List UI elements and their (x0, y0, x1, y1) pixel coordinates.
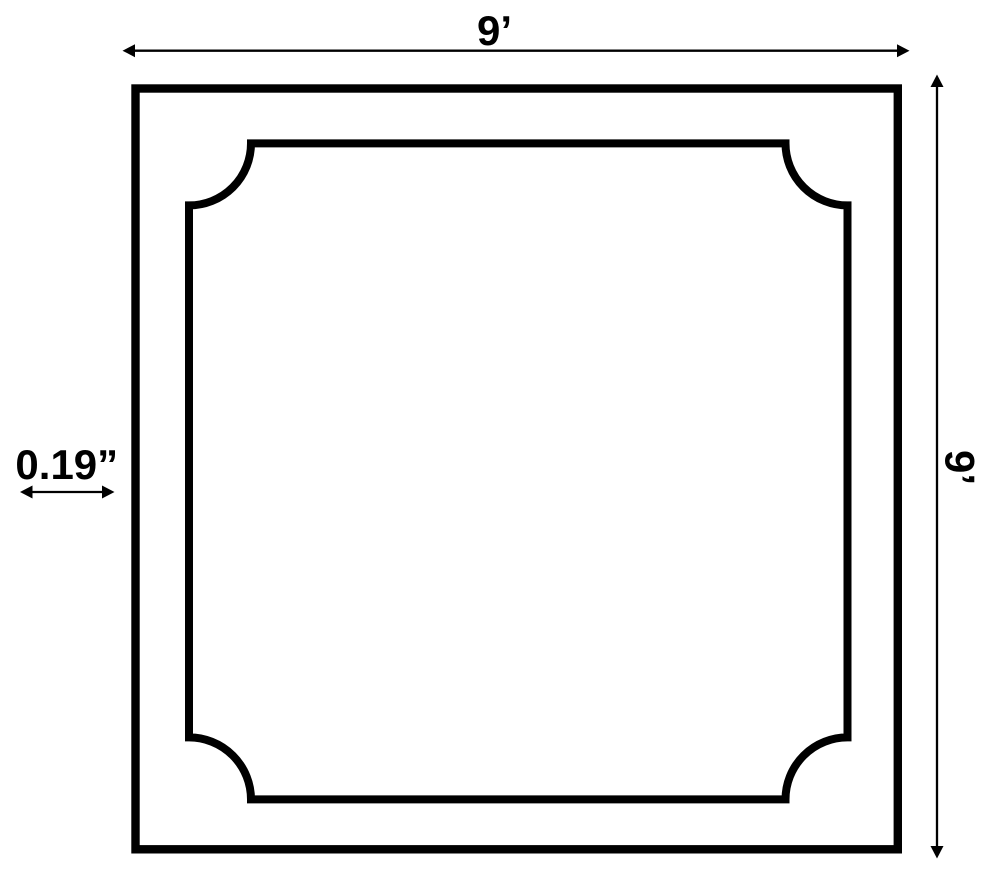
svg-text:9’: 9’ (477, 7, 512, 54)
svg-text:9’: 9’ (937, 450, 984, 485)
svg-text:0.19”: 0.19” (15, 441, 118, 488)
